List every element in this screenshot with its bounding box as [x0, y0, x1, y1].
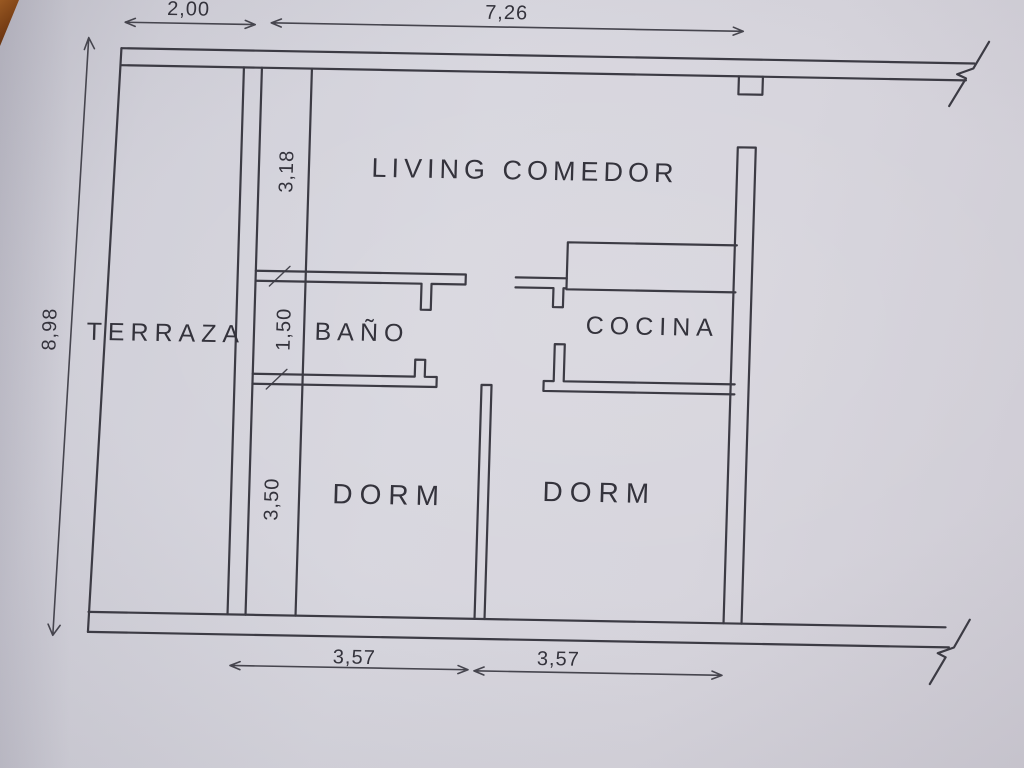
- bathroom-bottom-wall: [252, 357, 437, 387]
- right-wall: [724, 147, 756, 623]
- room-label-terraza: TERRAZA: [86, 318, 245, 349]
- dimension-column-tick-2: [266, 369, 287, 389]
- room-label-living-comedor: LIVING COMEDOR: [371, 153, 679, 189]
- dimension-column-left: [246, 68, 262, 615]
- kitchen-entry-wall-lower: [515, 287, 567, 307]
- bedroom-divider-wall: [475, 385, 492, 619]
- break-mark-top-right: [949, 41, 989, 107]
- floor-plan-drawing: 2,00 7,26 8,98 3,18 1,50 3,50 3,57 3,57 …: [0, 0, 1024, 768]
- dim-label-living-width: 7,26: [485, 2, 529, 25]
- floor-plan-photo: 2,00 7,26 8,98 3,18 1,50 3,50 3,57 3,57 …: [0, 0, 1024, 768]
- dim-label-total-depth: 8,98: [38, 307, 61, 350]
- bottom-wall-inner-line: [89, 612, 946, 627]
- dim-label-living-depth: 3,18: [275, 150, 298, 193]
- dim-line-dorm2-width: [474, 667, 722, 679]
- bottom-wall-outer-line: [88, 632, 949, 647]
- room-label-cocina: COCINA: [585, 312, 719, 342]
- dim-label-dorm-depth: 3,50: [260, 477, 283, 520]
- dim-label-dorm2-width: 3,57: [537, 648, 581, 671]
- break-mark-bottom-right: [930, 619, 970, 685]
- room-label-bano: BAÑO: [314, 317, 410, 348]
- top-wall-inner-line: [121, 65, 966, 80]
- room-label-dorm-2: DORM: [542, 476, 656, 509]
- dim-label-terraza-width: 2,00: [167, 0, 211, 21]
- kitchen-bottom-wall: [543, 344, 735, 394]
- dim-label-bano-depth: 1,50: [272, 308, 295, 351]
- top-wall-notch: [738, 76, 763, 94]
- top-wall-outer-line: [121, 48, 974, 63]
- room-label-dorm-1: DORM: [332, 478, 446, 511]
- kitchen-counter: [566, 242, 736, 292]
- kitchen-entry-wall-upper: [516, 277, 567, 278]
- dimension-column-tick-1: [269, 266, 290, 286]
- dim-label-dorm1-width: 3,57: [332, 646, 376, 669]
- bathroom-top-wall: [255, 271, 466, 311]
